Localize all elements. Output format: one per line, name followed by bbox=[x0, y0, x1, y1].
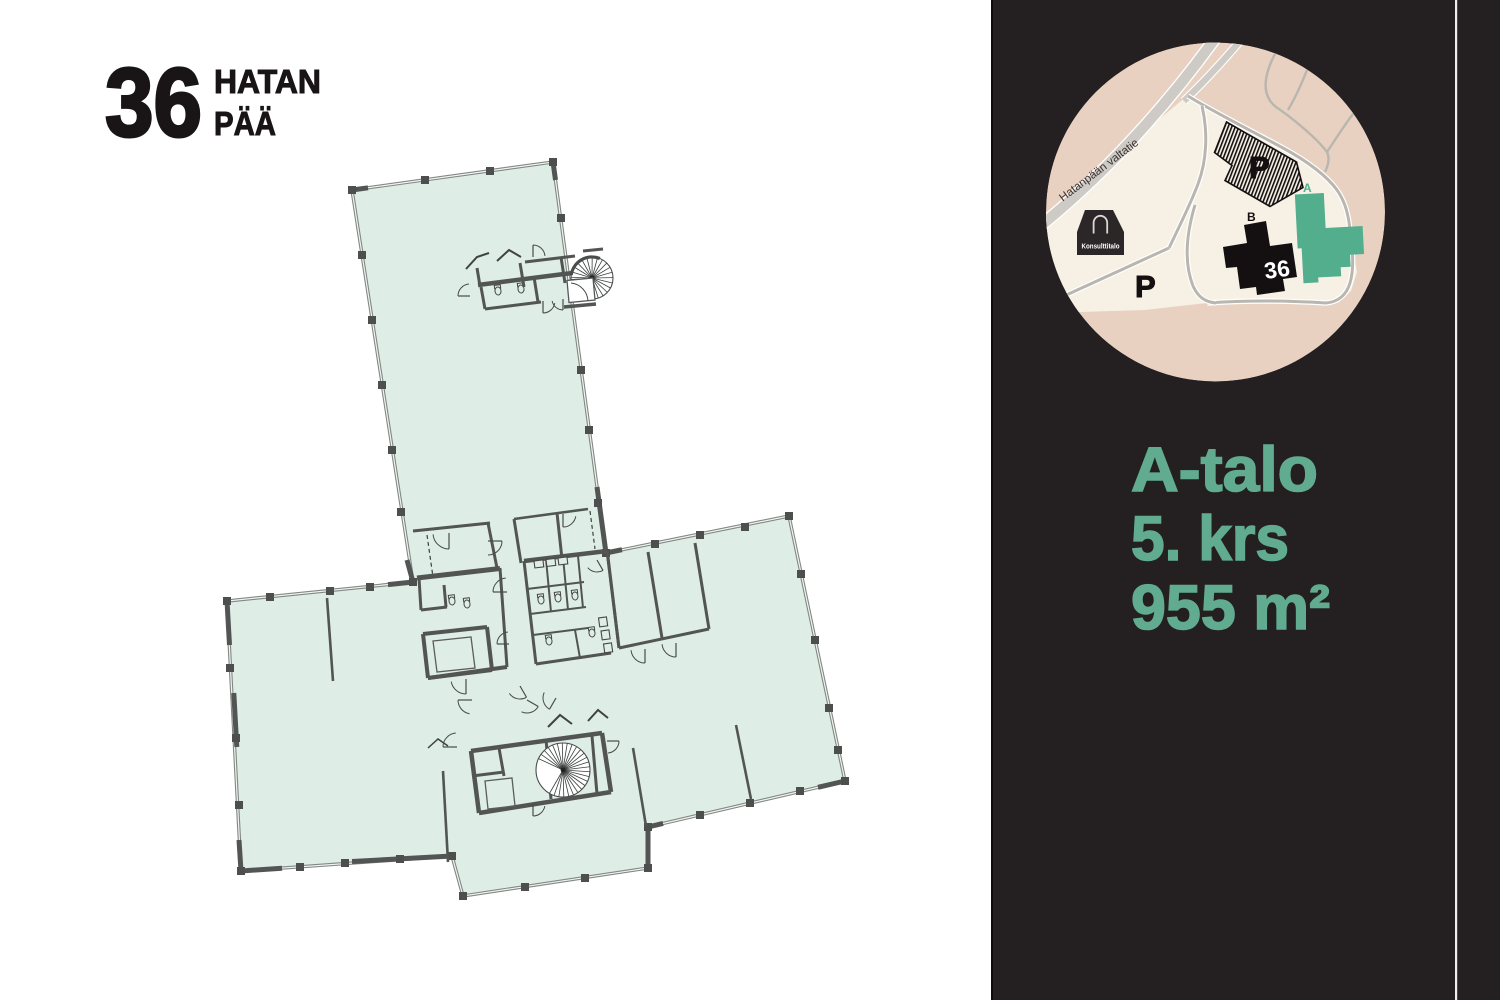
svg-text:A: A bbox=[1303, 181, 1312, 195]
svg-text:Konsulttitalo: Konsulttitalo bbox=[1082, 244, 1120, 251]
svg-text:36: 36 bbox=[1262, 255, 1291, 284]
svg-text:B: B bbox=[1247, 210, 1256, 224]
svg-text:A-talo: A-talo bbox=[1131, 435, 1318, 505]
svg-text:P: P bbox=[1249, 150, 1270, 185]
svg-text:5. krs: 5. krs bbox=[1131, 504, 1289, 574]
svg-text:36: 36 bbox=[105, 48, 202, 157]
svg-text:HATAN: HATAN bbox=[214, 63, 321, 100]
svg-text:955 m²: 955 m² bbox=[1131, 573, 1330, 643]
svg-text:PÄÄ: PÄÄ bbox=[214, 105, 276, 142]
svg-text:P: P bbox=[1135, 269, 1156, 304]
